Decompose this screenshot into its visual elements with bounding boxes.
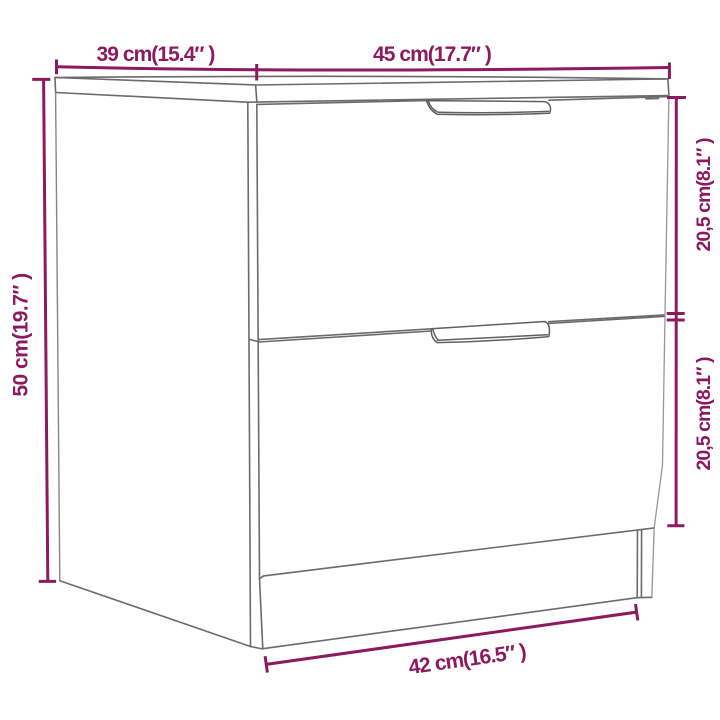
- svg-text:50 cm(19.7″ ): 50 cm(19.7″ ): [10, 273, 33, 396]
- svg-text:20,5 cm(8.1″ ): 20,5 cm(8.1″ ): [693, 138, 715, 252]
- svg-text:20,5 cm(8.1″ ): 20,5 cm(8.1″ ): [693, 357, 715, 471]
- svg-text:45 cm(17.7″ ): 45 cm(17.7″ ): [373, 43, 491, 66]
- svg-text:39 cm(15.4″ ): 39 cm(15.4″ ): [97, 43, 215, 66]
